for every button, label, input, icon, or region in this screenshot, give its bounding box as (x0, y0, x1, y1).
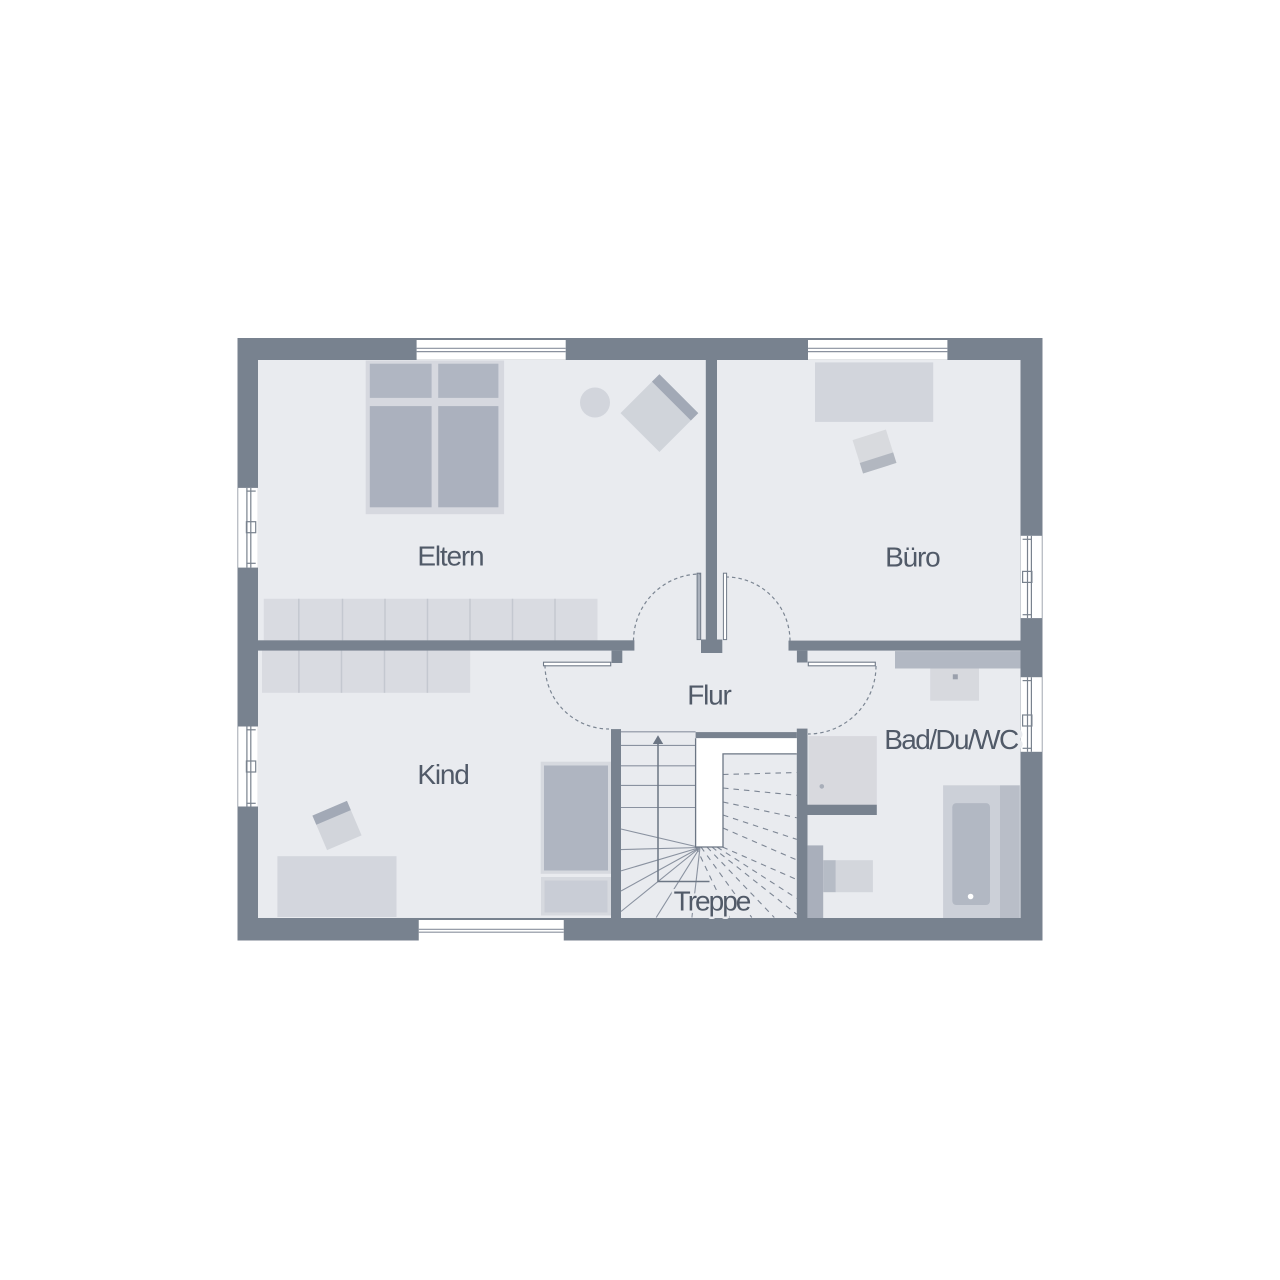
svg-text:Kind: Kind (417, 759, 468, 790)
svg-text:Büro: Büro (885, 541, 940, 572)
svg-text:Bad/Du/WC: Bad/Du/WC (884, 724, 1019, 755)
svg-text:Treppe: Treppe (674, 885, 751, 916)
svg-text:Flur: Flur (687, 679, 731, 710)
svg-text:Eltern: Eltern (417, 540, 483, 571)
